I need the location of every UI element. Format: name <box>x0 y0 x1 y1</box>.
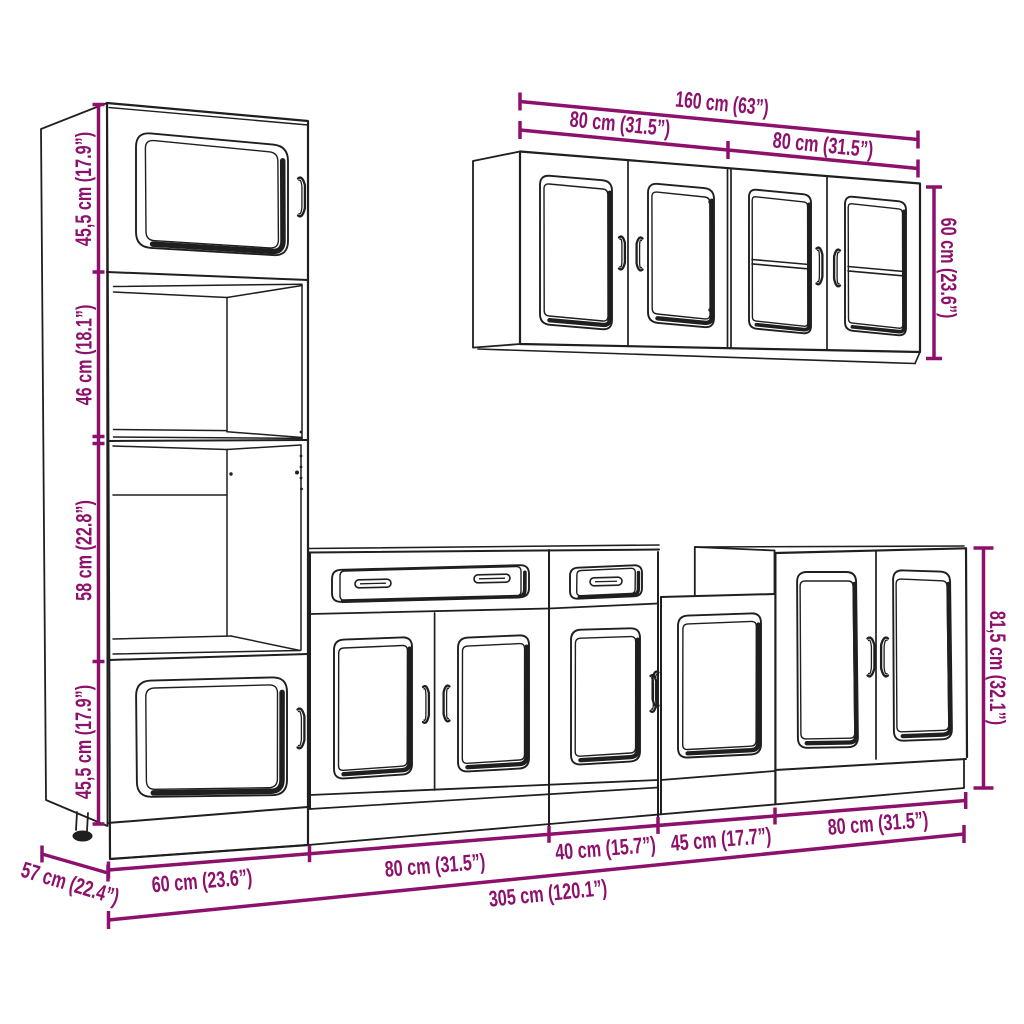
svg-text:80 cm (31.5”): 80 cm (31.5”) <box>827 807 929 840</box>
svg-text:80 cm (31.5”): 80 cm (31.5”) <box>384 849 486 882</box>
svg-text:45,5 cm (17.9”): 45,5 cm (17.9”) <box>71 685 96 799</box>
svg-text:60 cm (23.6”): 60 cm (23.6”) <box>151 865 253 898</box>
svg-text:46 cm (18.1”): 46 cm (18.1”) <box>72 305 97 406</box>
svg-text:40 cm (15.7”): 40 cm (15.7”) <box>554 832 656 865</box>
svg-text:81,5 cm (32.1”): 81,5 cm (32.1”) <box>984 611 1009 725</box>
svg-text:58 cm (22.8”): 58 cm (22.8”) <box>72 500 97 601</box>
svg-text:60 cm (23.6”): 60 cm (23.6”) <box>935 218 960 319</box>
svg-text:45,5 cm (17.9”): 45,5 cm (17.9”) <box>71 132 96 246</box>
svg-text:45 cm (17.7”): 45 cm (17.7”) <box>670 823 772 856</box>
